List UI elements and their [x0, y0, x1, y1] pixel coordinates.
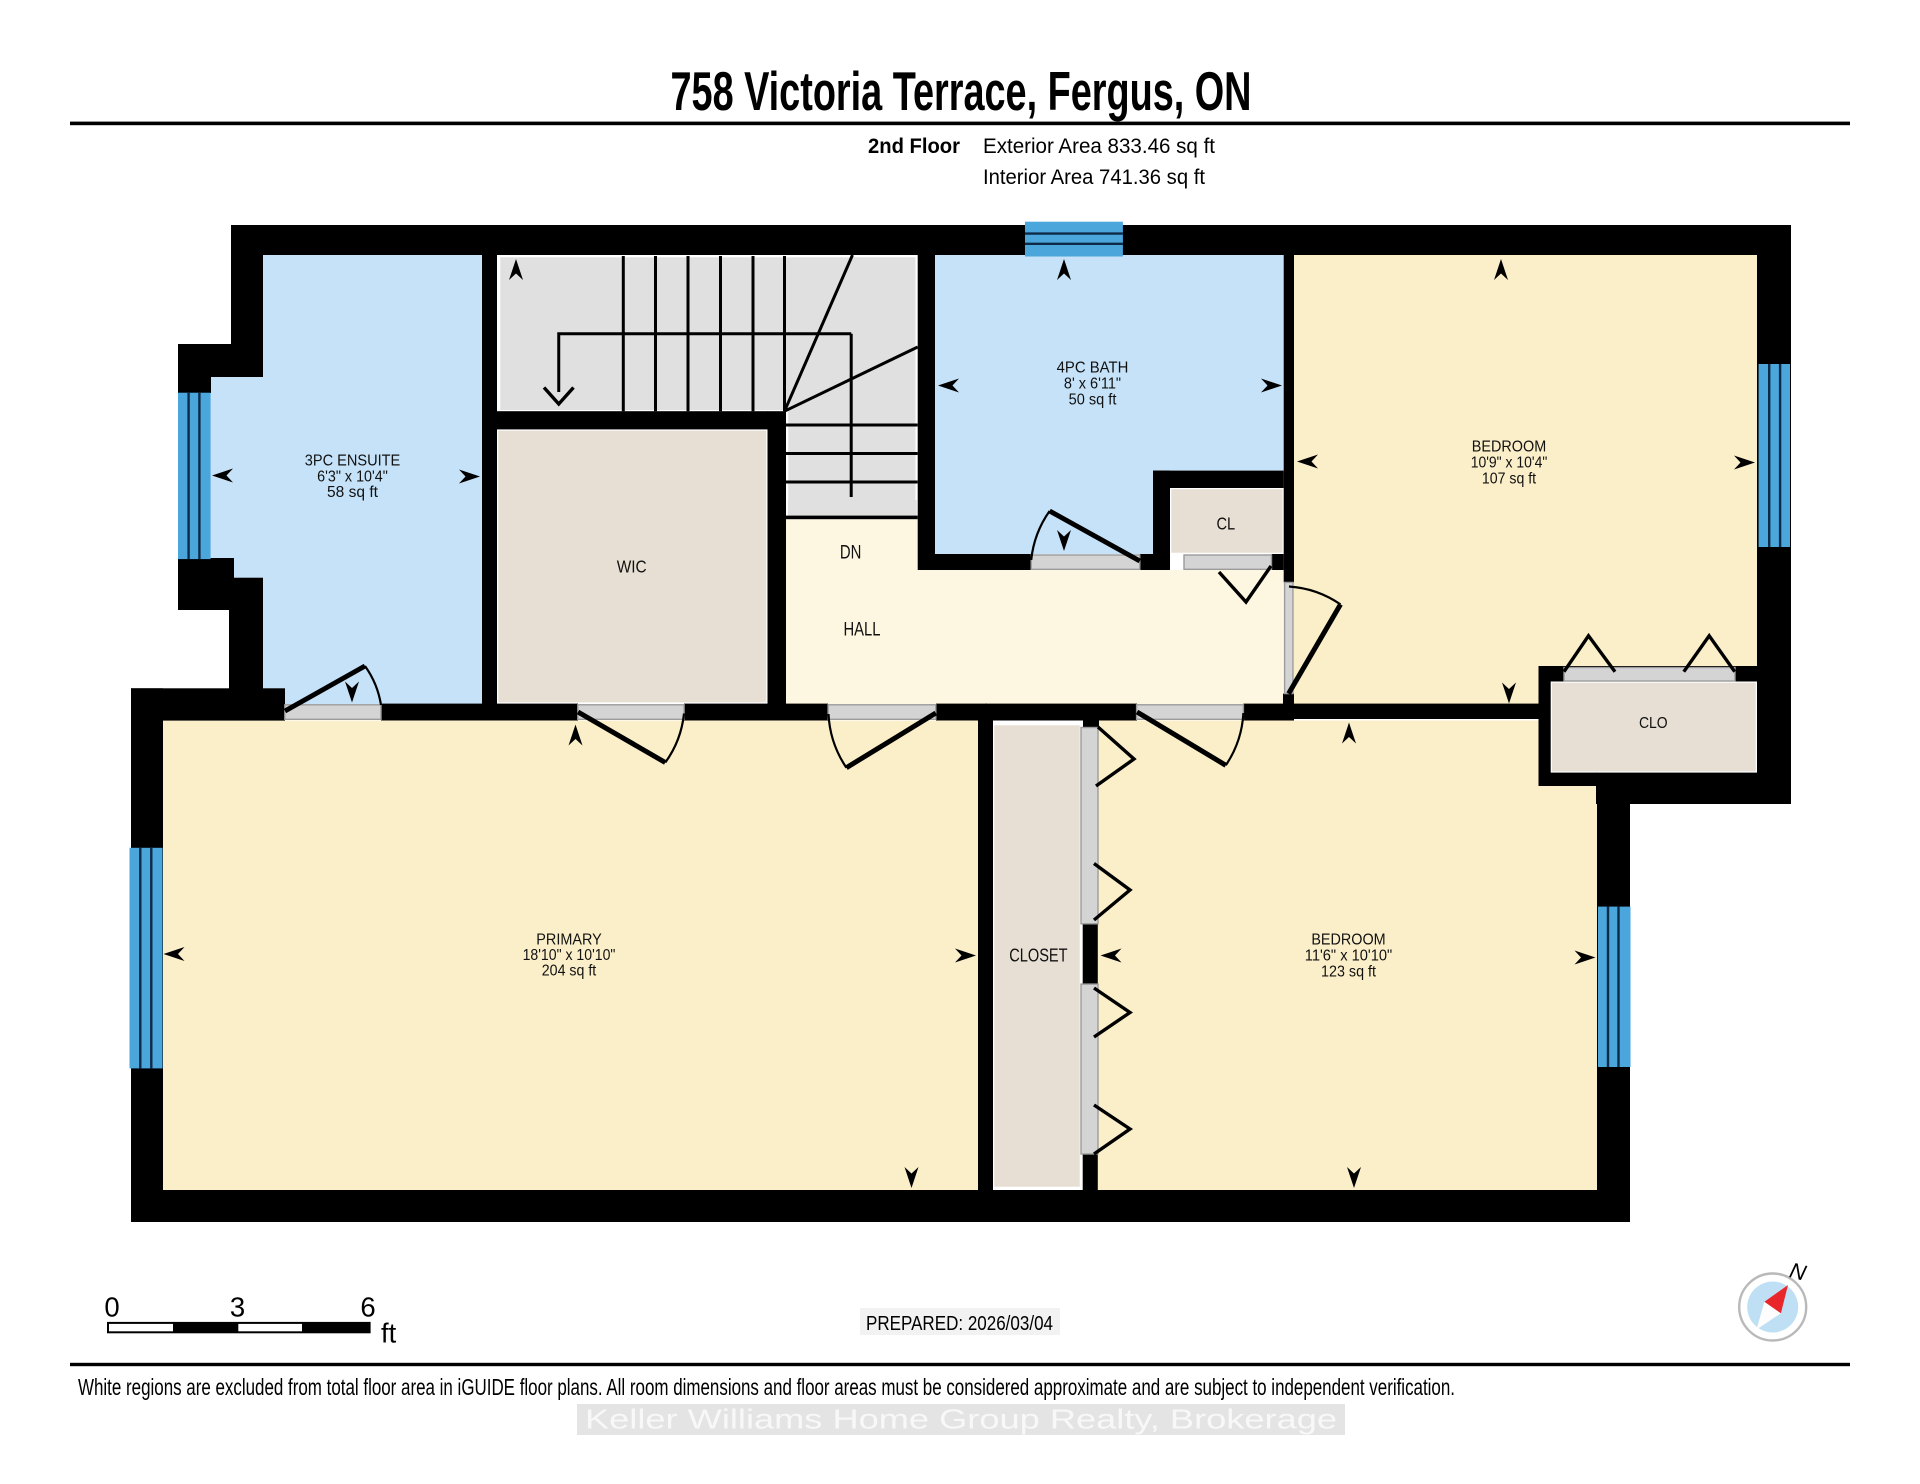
- svg-text:123 sq ft: 123 sq ft: [1321, 963, 1376, 980]
- svg-text:204 sq ft: 204 sq ft: [542, 963, 597, 980]
- svg-text:Exterior Area 833.46 sq ft: Exterior Area 833.46 sq ft: [983, 135, 1215, 158]
- svg-text:DN: DN: [840, 542, 862, 564]
- svg-text:11'6" x 10'10": 11'6" x 10'10": [1305, 947, 1393, 964]
- svg-text:4PC BATH: 4PC BATH: [1057, 359, 1129, 376]
- svg-text:PRIMARY: PRIMARY: [536, 932, 602, 949]
- svg-text:3: 3: [230, 1292, 245, 1323]
- svg-text:758 Victoria Terrace, Fergus,: 758 Victoria Terrace, Fergus, ON: [671, 60, 1252, 122]
- svg-text:58 sq ft: 58 sq ft: [327, 484, 379, 501]
- svg-text:White regions are excluded fro: White regions are excluded from total fl…: [78, 1374, 1455, 1400]
- svg-text:N: N: [1787, 1257, 1809, 1285]
- svg-text:18'10" x 10'10": 18'10" x 10'10": [523, 947, 616, 964]
- svg-text:8' x 6'11": 8' x 6'11": [1064, 375, 1121, 392]
- svg-text:3PC ENSUITE: 3PC ENSUITE: [305, 453, 401, 470]
- svg-text:2nd Floor: 2nd Floor: [868, 135, 960, 158]
- svg-text:6'3" x 10'4": 6'3" x 10'4": [317, 468, 388, 485]
- svg-text:6: 6: [360, 1292, 375, 1323]
- svg-text:BEDROOM: BEDROOM: [1311, 931, 1385, 948]
- svg-text:CLO: CLO: [1639, 715, 1668, 732]
- svg-text:50 sq ft: 50 sq ft: [1069, 391, 1117, 408]
- svg-text:CLOSET: CLOSET: [1009, 945, 1067, 965]
- svg-text:BEDROOM: BEDROOM: [1472, 439, 1546, 456]
- svg-text:Interior Area 741.36 sq ft: Interior Area 741.36 sq ft: [983, 166, 1205, 189]
- svg-text:Keller Williams Home Group Rea: Keller Williams Home Group Realty, Broke…: [585, 1404, 1337, 1435]
- svg-text:WIC: WIC: [617, 557, 647, 577]
- svg-text:ft: ft: [381, 1318, 397, 1349]
- svg-text:107 sq ft: 107 sq ft: [1482, 471, 1537, 488]
- svg-text:PREPARED: 2026/03/04: PREPARED: 2026/03/04: [866, 1312, 1053, 1335]
- svg-text:CL: CL: [1216, 513, 1235, 533]
- svg-text:0: 0: [104, 1292, 119, 1323]
- svg-text:HALL: HALL: [844, 618, 881, 640]
- svg-text:10'9" x 10'4": 10'9" x 10'4": [1471, 455, 1548, 472]
